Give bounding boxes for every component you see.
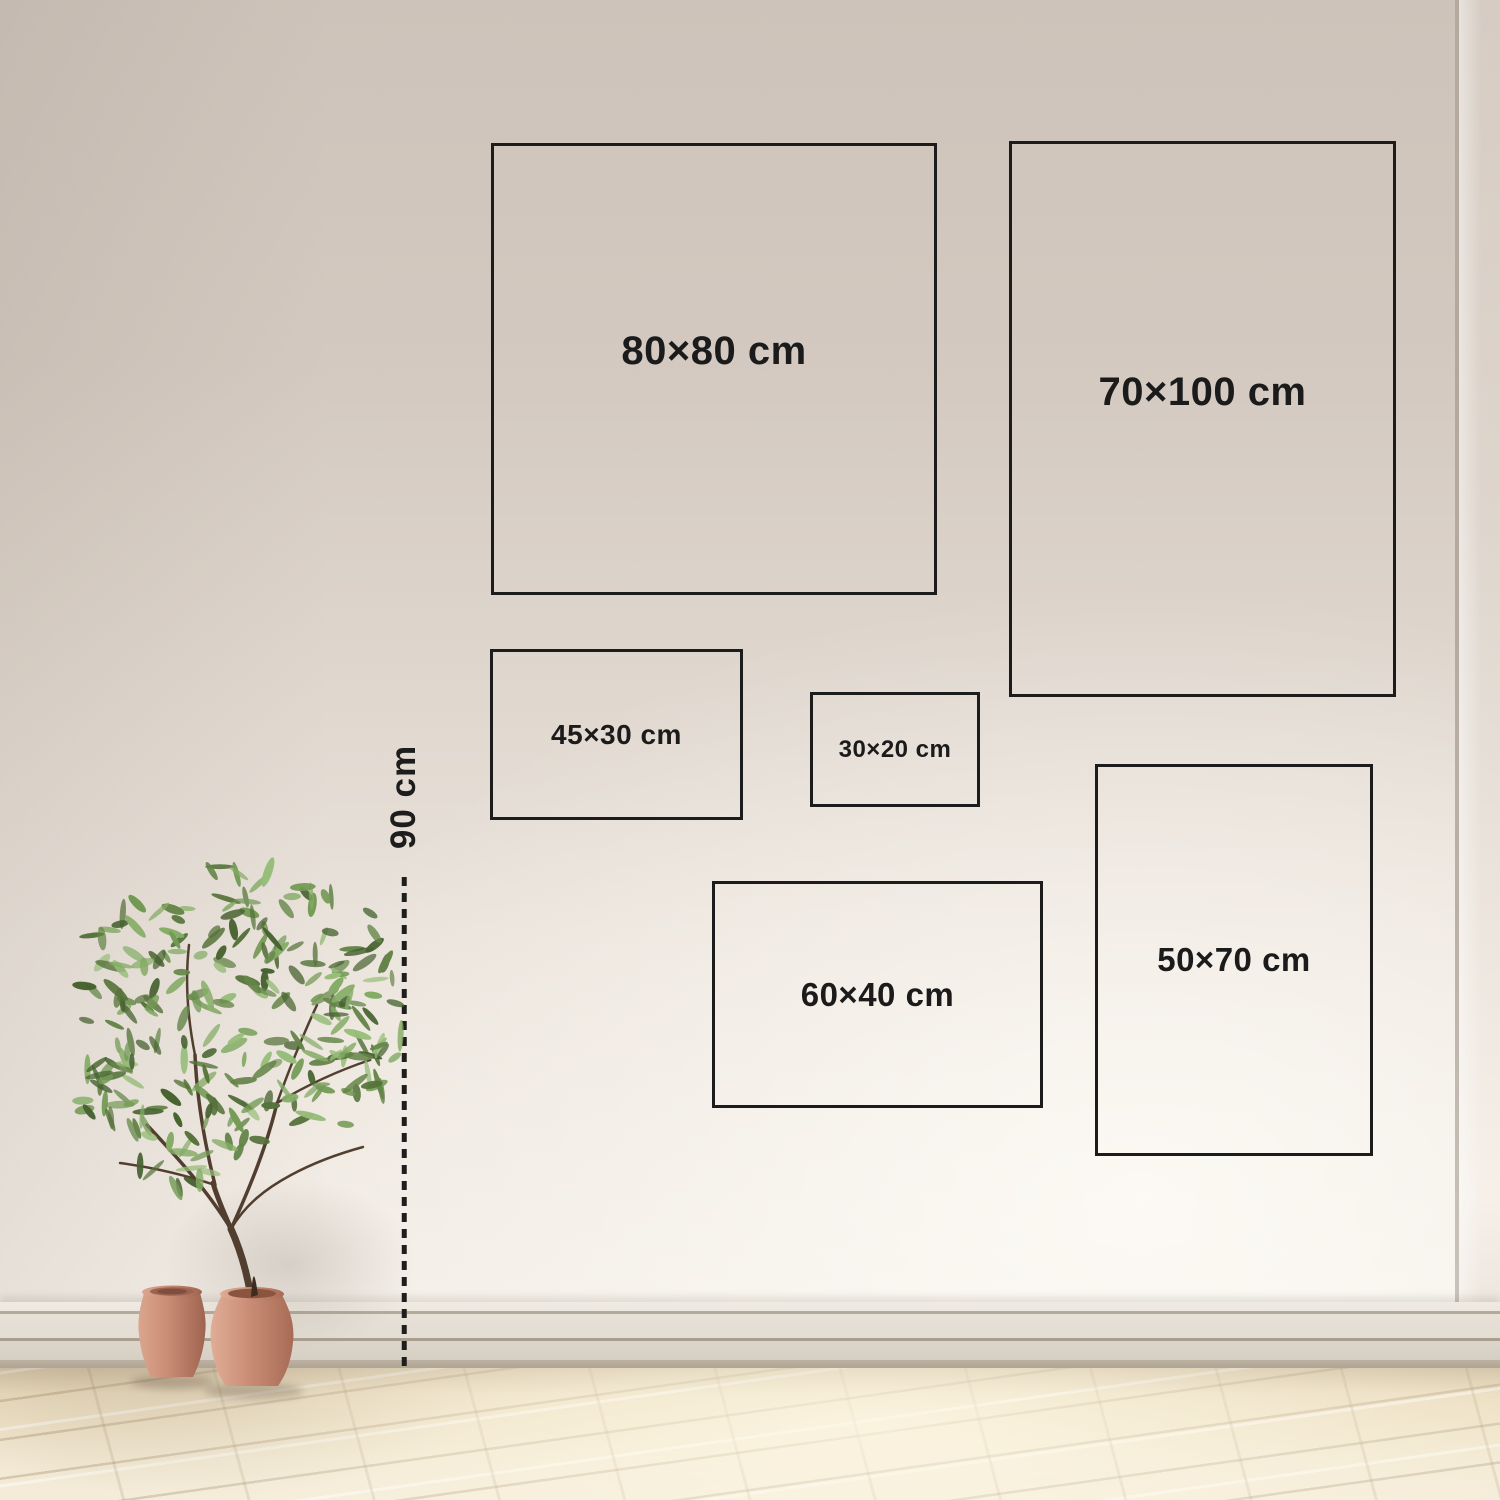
size-box-70x100: 70×100 cm [1009, 141, 1396, 697]
wall-corner-seam [1455, 0, 1459, 1302]
size-box-label: 50×70 cm [1157, 941, 1311, 979]
height-measure-label: 90 cm [384, 745, 424, 849]
size-box-label: 60×40 cm [801, 976, 955, 1014]
size-box-label: 80×80 cm [621, 329, 806, 374]
size-box-50x70: 50×70 cm [1095, 764, 1373, 1156]
size-box-label: 70×100 cm [1098, 370, 1306, 415]
terracotta-pot-right [211, 1276, 294, 1386]
size-box-label: 30×20 cm [839, 736, 952, 764]
size-box-60x40: 60×40 cm [712, 881, 1043, 1108]
terracotta-pot-left [138, 1286, 205, 1378]
size-box-label: 45×30 cm [551, 719, 682, 751]
wall-corner-panel [1459, 0, 1500, 1302]
poster-size-guide-scene: 90 cm 80×80 cm 70×100 cm 45×30 cm 30×20 … [0, 0, 1500, 1500]
potted-plant-image [55, 845, 405, 1405]
size-box-45x30: 45×30 cm [490, 649, 743, 820]
size-box-30x20: 30×20 cm [810, 692, 980, 807]
size-box-80x80: 80×80 cm [491, 143, 937, 595]
